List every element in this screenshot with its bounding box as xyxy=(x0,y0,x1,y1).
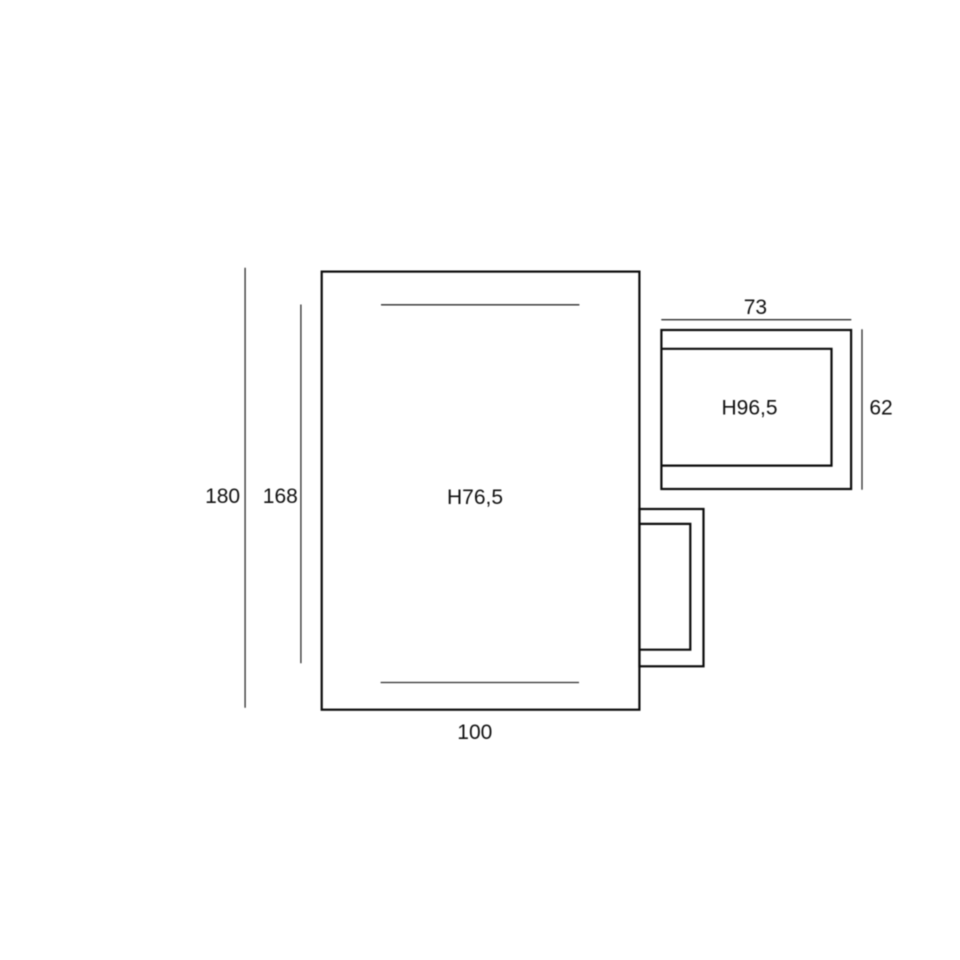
svg-text:100: 100 xyxy=(457,721,492,744)
svg-text:73: 73 xyxy=(744,296,767,319)
svg-text:H96,5: H96,5 xyxy=(721,396,777,419)
svg-text:62: 62 xyxy=(869,397,892,420)
svg-text:180: 180 xyxy=(205,485,240,508)
svg-text:H76,5: H76,5 xyxy=(447,486,503,509)
svg-text:168: 168 xyxy=(263,485,298,508)
